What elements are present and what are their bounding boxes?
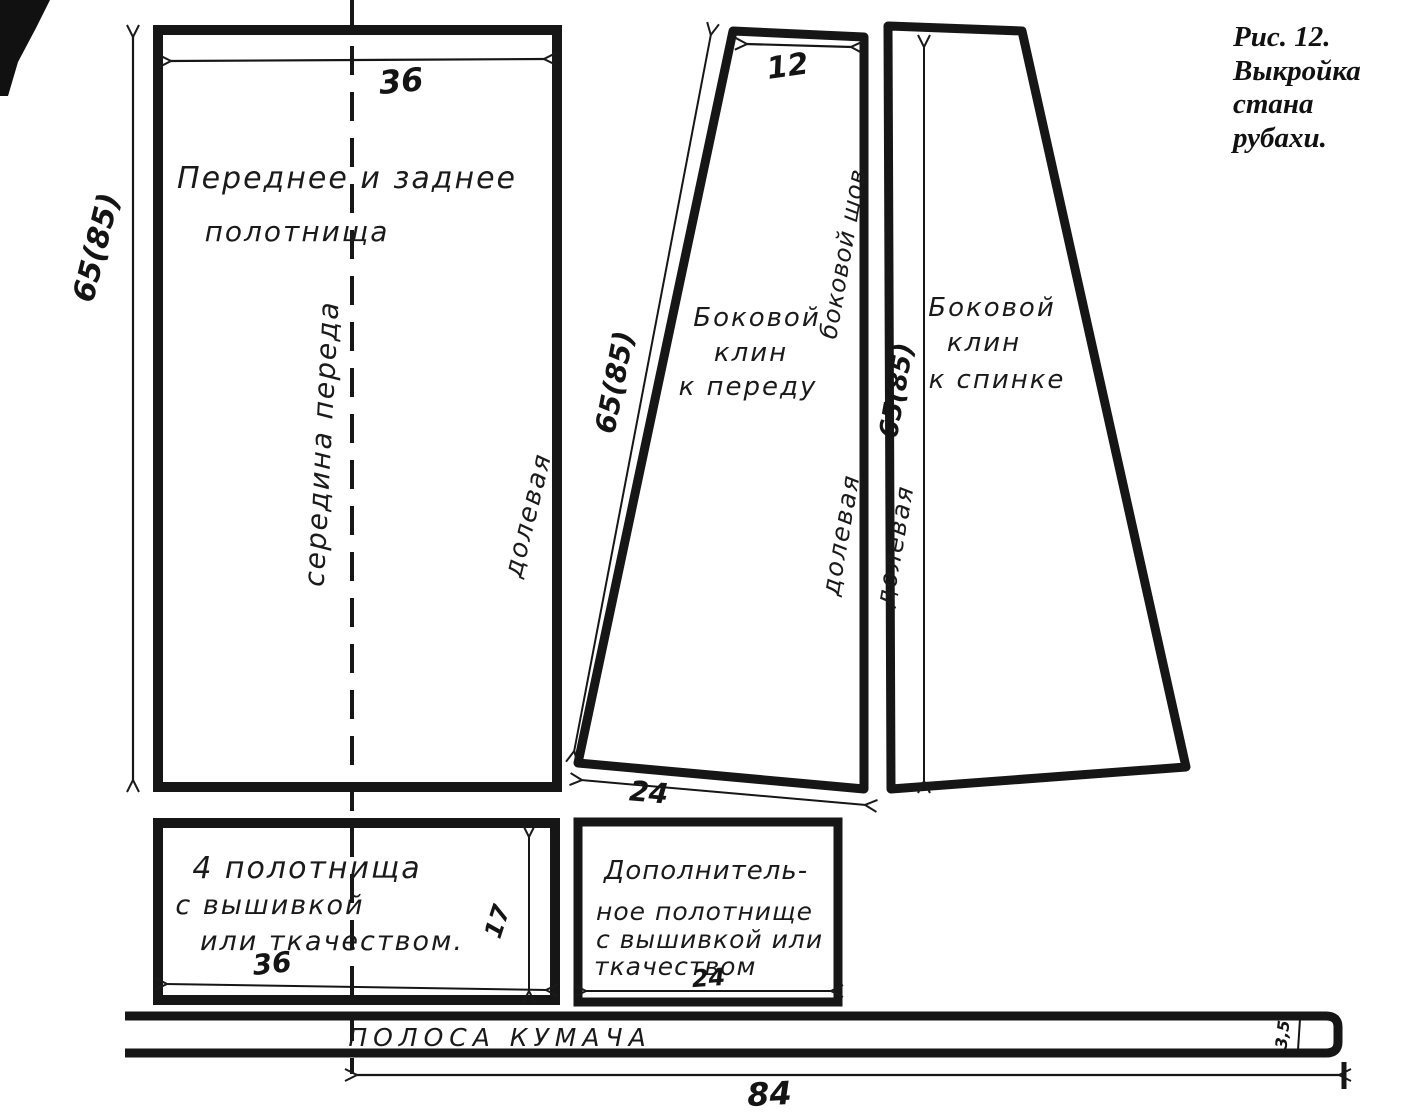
- center-front-label: середина переда: [298, 300, 346, 588]
- piece-embroidered-panels: 4 полотнища с вышивкой или ткачеством. 3…: [158, 823, 555, 1000]
- length-dimension-value: 65(85): [874, 341, 920, 441]
- caption-line4: рубахи.: [1230, 122, 1327, 154]
- kumach-strip-label: ПОЛОСА КУМАЧА: [348, 1023, 651, 1052]
- scan-corner-artifact: [0, 0, 50, 96]
- gusset-name-line3: к переду: [679, 372, 818, 402]
- piece-front-back-panel: 65(85) 36 Переднее и заднее полотнища се…: [66, 30, 558, 787]
- figure-caption: Рис. 12. Выкройка стана рубахи.: [1230, 21, 1361, 154]
- gusset-name-line2: клин: [714, 338, 788, 368]
- height-dimension-value: 17: [479, 901, 516, 942]
- panels-name-line2: с вышивкой: [175, 890, 364, 921]
- front-back-panel-outline: [158, 30, 557, 787]
- grain-line-label: долевая: [815, 471, 865, 598]
- piece-kumach-strip: ПОЛОСА КУМАЧА 3,5 84: [125, 1016, 1344, 1114]
- additional-name-line1: Дополнитель-: [603, 856, 808, 886]
- scanned-page: 65(85) 36 Переднее и заднее полотнища се…: [0, 0, 1415, 1115]
- caption-line2: Выкройка: [1232, 55, 1361, 87]
- strip-width-value: 3,5: [1272, 1019, 1294, 1049]
- bottom-dimension-value: 24: [628, 774, 670, 810]
- panels-name-line1: 4 полотнища: [192, 851, 421, 886]
- additional-name-line2: ное полотнище: [596, 897, 813, 926]
- piece-additional-panel: Дополнитель- ное полотнище с вышивкой ил…: [578, 822, 838, 1002]
- strip-width-tick: [1298, 1019, 1300, 1050]
- additional-name-line4: ткачеством: [594, 952, 756, 981]
- width-dimension-value: 36: [377, 60, 425, 102]
- caption-line1: Рис. 12.: [1232, 21, 1330, 53]
- strip-length-value: 84: [746, 1074, 792, 1114]
- caption-line3: стана: [1233, 88, 1314, 120]
- gusset-name-line2: клин: [947, 328, 1021, 358]
- grain-line-label: долевая: [498, 450, 558, 582]
- grain-line-label: долевая: [869, 482, 919, 609]
- width-dimension-value: 24: [691, 963, 726, 993]
- piece-front-side-gusset: 65(85) 12 24 Боковой клин к переду боков…: [574, 31, 872, 811]
- width-dimension-line: [170, 59, 545, 61]
- width-dimension-value: 36: [251, 945, 293, 982]
- length-dimension-value: 65(85): [66, 190, 127, 306]
- top-dimension-value: 12: [765, 46, 811, 86]
- width-dimension-line: [166, 984, 547, 990]
- panel-name-line1: Переднее и заднее: [177, 161, 517, 196]
- panels-name-line3: или ткачеством.: [200, 926, 464, 957]
- slant-dimension-value: 65(85): [589, 328, 641, 436]
- piece-back-side-gusset: 65(85) долевая Боковой клин к спинке: [869, 26, 1186, 789]
- gusset-name-line1: Боковой: [928, 293, 1055, 323]
- gusset-name-line1: Боковой: [693, 303, 820, 333]
- gusset-name-line3: к спинке: [929, 365, 1066, 395]
- panel-name-line2: полотнища: [205, 215, 390, 248]
- pattern-diagram: 65(85) 36 Переднее и заднее полотнища се…: [0, 0, 1415, 1115]
- additional-name-line3: с вышивкой или: [596, 925, 823, 954]
- kumach-strip-outline: [125, 1016, 1338, 1053]
- back-gusset-outline: [888, 26, 1186, 789]
